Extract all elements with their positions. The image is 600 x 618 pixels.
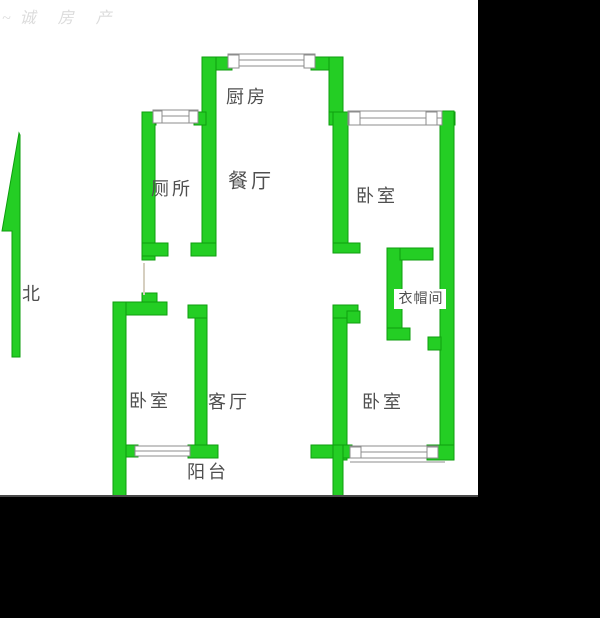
- wall-segment: [440, 111, 454, 460]
- window-cap: [350, 447, 361, 458]
- room-label-toilet: 厕所: [151, 179, 193, 199]
- room-label-kitchen: 厨房: [226, 87, 268, 107]
- window-symbol: [153, 110, 198, 123]
- entry-door-line: [143, 263, 145, 295]
- wall-segment: [191, 243, 216, 256]
- window-symbol: [228, 54, 315, 68]
- room-label-living: 客厅: [208, 392, 250, 412]
- wall-segment: [333, 243, 360, 253]
- wall-segment: [188, 445, 218, 458]
- window-cap: [153, 111, 162, 123]
- floor-plan: ~诚 房 产: [0, 0, 600, 618]
- window-cap: [426, 112, 437, 125]
- wall-segment: [188, 305, 207, 318]
- window-cap: [427, 447, 438, 458]
- window-cap: [349, 112, 360, 125]
- window-cap: [304, 55, 315, 68]
- floor-plan-image: ~诚 房 产: [0, 0, 600, 618]
- room-label-balcony: 阳台: [187, 462, 229, 482]
- wall-segment: [142, 243, 168, 256]
- wall-segment: [333, 112, 348, 253]
- wall-segment: [387, 328, 410, 340]
- wall-segment: [400, 248, 433, 260]
- window-symbol: [348, 111, 442, 125]
- wall-segment: [347, 311, 360, 323]
- wall-segment: [113, 302, 126, 497]
- room-label-bedroom-se: 卧室: [362, 392, 404, 412]
- wall-segment: [195, 305, 207, 457]
- wall-segment: [311, 445, 352, 458]
- room-label-dining: 餐厅: [228, 170, 274, 193]
- wall-segment: [333, 305, 347, 460]
- room-label-bedroom-sw: 卧室: [129, 391, 171, 411]
- room-label-bedroom-ne: 卧室: [356, 186, 398, 206]
- window-cap: [189, 111, 198, 123]
- crop-edge-line: [0, 495, 478, 497]
- window-symbol: [135, 446, 190, 456]
- window-cap: [228, 55, 239, 68]
- wall-segment: [333, 445, 343, 497]
- mask-bottom: [0, 497, 600, 618]
- watermark-text: ~诚 房 产: [2, 9, 121, 27]
- north-label: 北: [22, 284, 40, 304]
- wall-segment: [202, 57, 216, 243]
- room-label-cloakroom: 衣帽间: [399, 291, 444, 307]
- wall-segment: [428, 337, 441, 350]
